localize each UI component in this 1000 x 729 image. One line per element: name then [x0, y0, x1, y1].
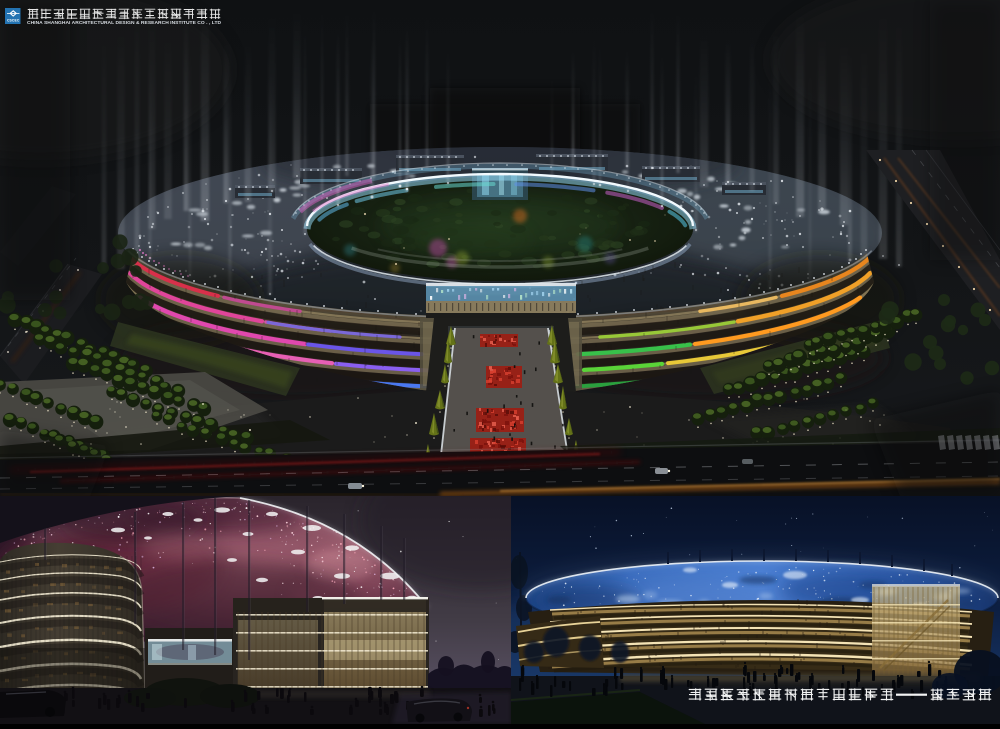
svg-text:CSCEC: CSCEC — [7, 18, 20, 22]
svg-text:CHINA SHANGHAI ARCHITECTURAL D: CHINA SHANGHAI ARCHITECTURAL DESIGN & RE… — [27, 20, 222, 26]
